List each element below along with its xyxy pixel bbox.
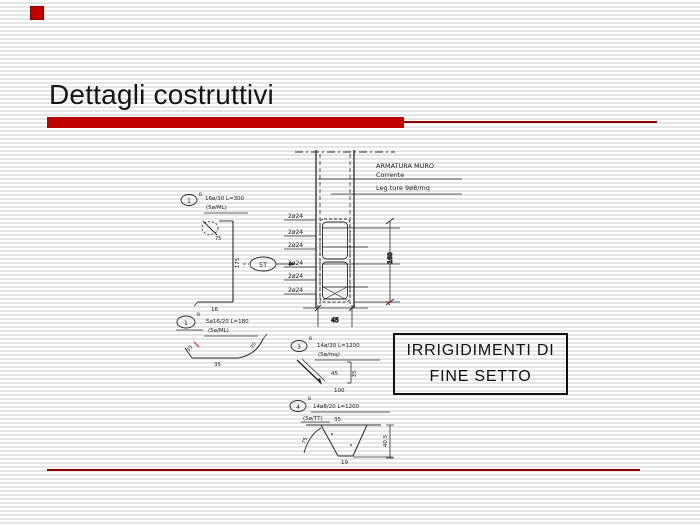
slide: { "slide": { "title": "Dettagli costrutt… [0, 0, 700, 525]
callout-1-text1: 16ø/30 L=300 [205, 196, 245, 202]
rebar-label: 2ø24 [288, 242, 303, 249]
callout-3-text1: 14ø/30 L=1200 [317, 343, 360, 349]
detail-bar-4: 4 B 14ø8/20 L=1200 (5ø/TT) 35 75 40.5 19 [290, 396, 394, 466]
mark-1-sup: B [199, 192, 202, 198]
dim-bar-foot: 16 [211, 307, 218, 313]
callout-2-text2: (5ø/ML) [208, 328, 229, 334]
dimension-column-height: 160 [386, 218, 394, 305]
mark-4-sup: B [308, 396, 311, 402]
dim-d4-top: 35 [334, 417, 341, 423]
callout-4-text1: 14ø8/20 L=1200 [313, 404, 360, 410]
wall-note-title: ARMATURA MURO [376, 162, 434, 170]
mark-1: 1 [187, 198, 191, 205]
dim-column-width: 45 [331, 317, 339, 324]
wall-note-sub: Corrente [376, 171, 404, 179]
mark-3: 3 [297, 344, 301, 351]
rebar-label: 2ø24 [288, 229, 303, 236]
detail-bar-3: 3 B 14ø/30 L=1200 (5ø/mq) 45 35 100 [291, 336, 380, 394]
dimension-column-width: 45 [303, 305, 368, 327]
mark-3-sup: B [309, 336, 312, 342]
dim-d3-diag: 45 [331, 371, 338, 377]
rebar-labels: 2ø24 2ø24 2ø24 2ø24 2ø24 2ø24 [284, 213, 316, 294]
callout-2-text1: 5ø16/20 L=180 [206, 319, 249, 325]
wall-notes: ARMATURA MURO Corrente Leg.ture 9ø8/mq [376, 162, 434, 192]
callout-3-text2: (5ø/mq) [318, 352, 340, 358]
detail-bar-2: 1 B 5ø16/20 L=180 (5ø/ML) 35 35 70 [176, 312, 267, 368]
wall-note-ties: Leg.ture 9ø8/mq [376, 184, 430, 192]
dim-d3-right: 35 [352, 370, 358, 377]
dim-d3-bottom: 100 [334, 388, 345, 394]
dim-d4-bottom: 19 [341, 460, 348, 466]
label-box-line2: FINE SETTO [430, 368, 532, 386]
dim-d2-left: 35 [186, 344, 195, 353]
mark-5t: 5T [259, 261, 267, 269]
mark-2-sup: B [197, 312, 200, 318]
dim-hook: 75 [215, 236, 221, 242]
construction-detail-drawing: ARMATURA MURO Corrente Leg.ture 9ø8/mq 1… [0, 0, 700, 525]
dim-d2-bottom: 35 [214, 362, 221, 368]
detail-bar-1: 1 B 16ø/30 L=300 (5ø/ML) 75 175 16 [181, 192, 248, 313]
dim-bar-height: 175 [235, 257, 241, 268]
rebar-label: 2ø24 [288, 213, 303, 220]
rebar-label: 2ø24 [288, 287, 303, 294]
label-box: IRRIGIDIMENTI DI FINE SETTO [393, 333, 568, 395]
mark-4: 4 [296, 404, 300, 411]
dim-column-height: 160 [387, 252, 394, 264]
callout-4-text2: (5ø/TT) [303, 416, 323, 422]
rebar-label: 2ø24 [288, 273, 303, 280]
mark-2: 1 [184, 319, 188, 327]
dim-d4-right: 40.5 [383, 434, 389, 447]
label-box-line1: IRRIGIDIMENTI DI [407, 342, 555, 360]
red-check-mark [194, 342, 199, 347]
callout-1-text2: (5ø/ML) [206, 205, 227, 211]
